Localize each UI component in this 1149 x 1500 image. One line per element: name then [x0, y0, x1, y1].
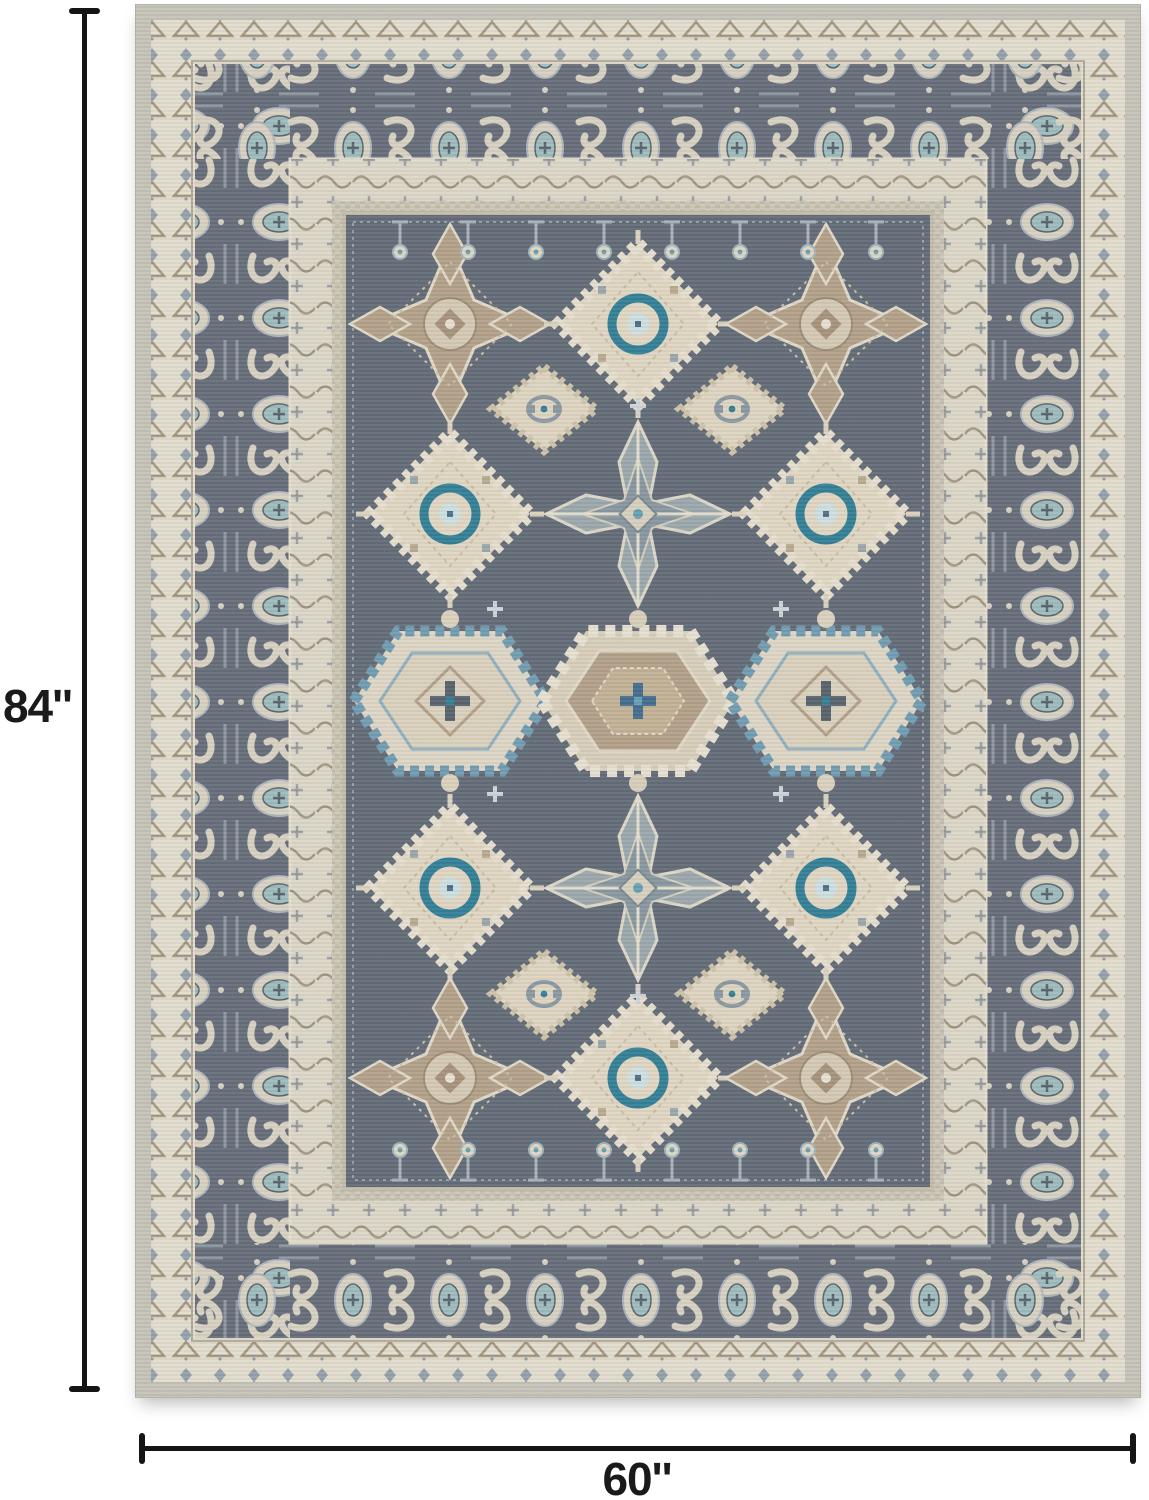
width-dimension-label: 60'': [517, 1456, 757, 1500]
height-dimension-cap-top: [69, 8, 100, 14]
rug-image: [135, 4, 1141, 1398]
width-dimension-line: [141, 1446, 1134, 1451]
width-dimension-cap-left: [139, 1433, 145, 1464]
product-dimension-image: 84'' 60'': [0, 0, 1149, 1500]
height-dimension-label: 84'': [0, 683, 72, 729]
height-dimension-line: [82, 10, 87, 1390]
height-dimension-cap-bottom: [69, 1386, 100, 1392]
rug-artwork: [135, 4, 1141, 1398]
width-dimension-cap-right: [1130, 1433, 1136, 1464]
